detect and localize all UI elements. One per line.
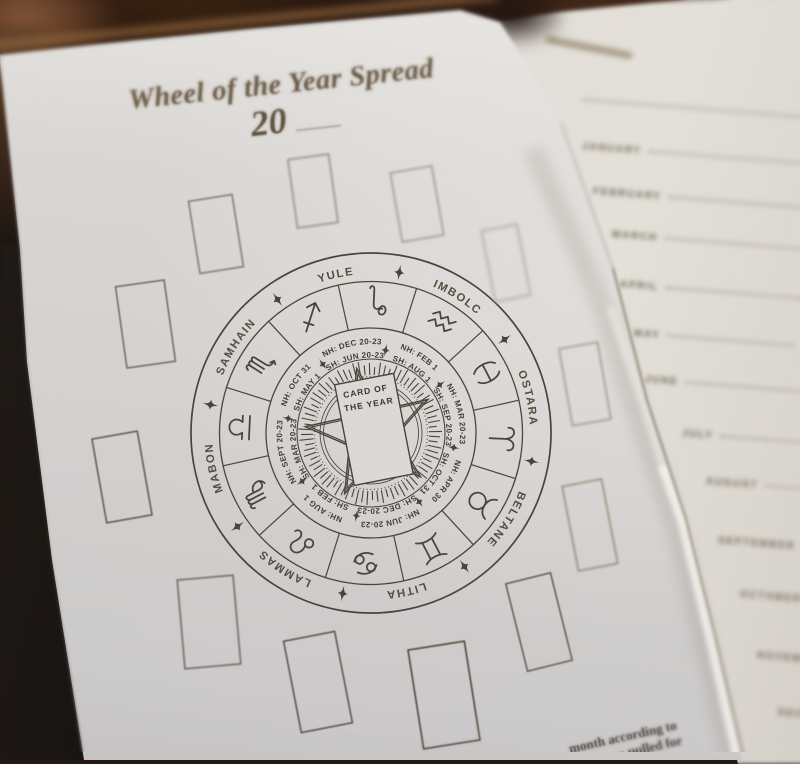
svg-text:MABON: MABON	[201, 441, 226, 495]
svg-text:20: 20	[247, 100, 289, 144]
